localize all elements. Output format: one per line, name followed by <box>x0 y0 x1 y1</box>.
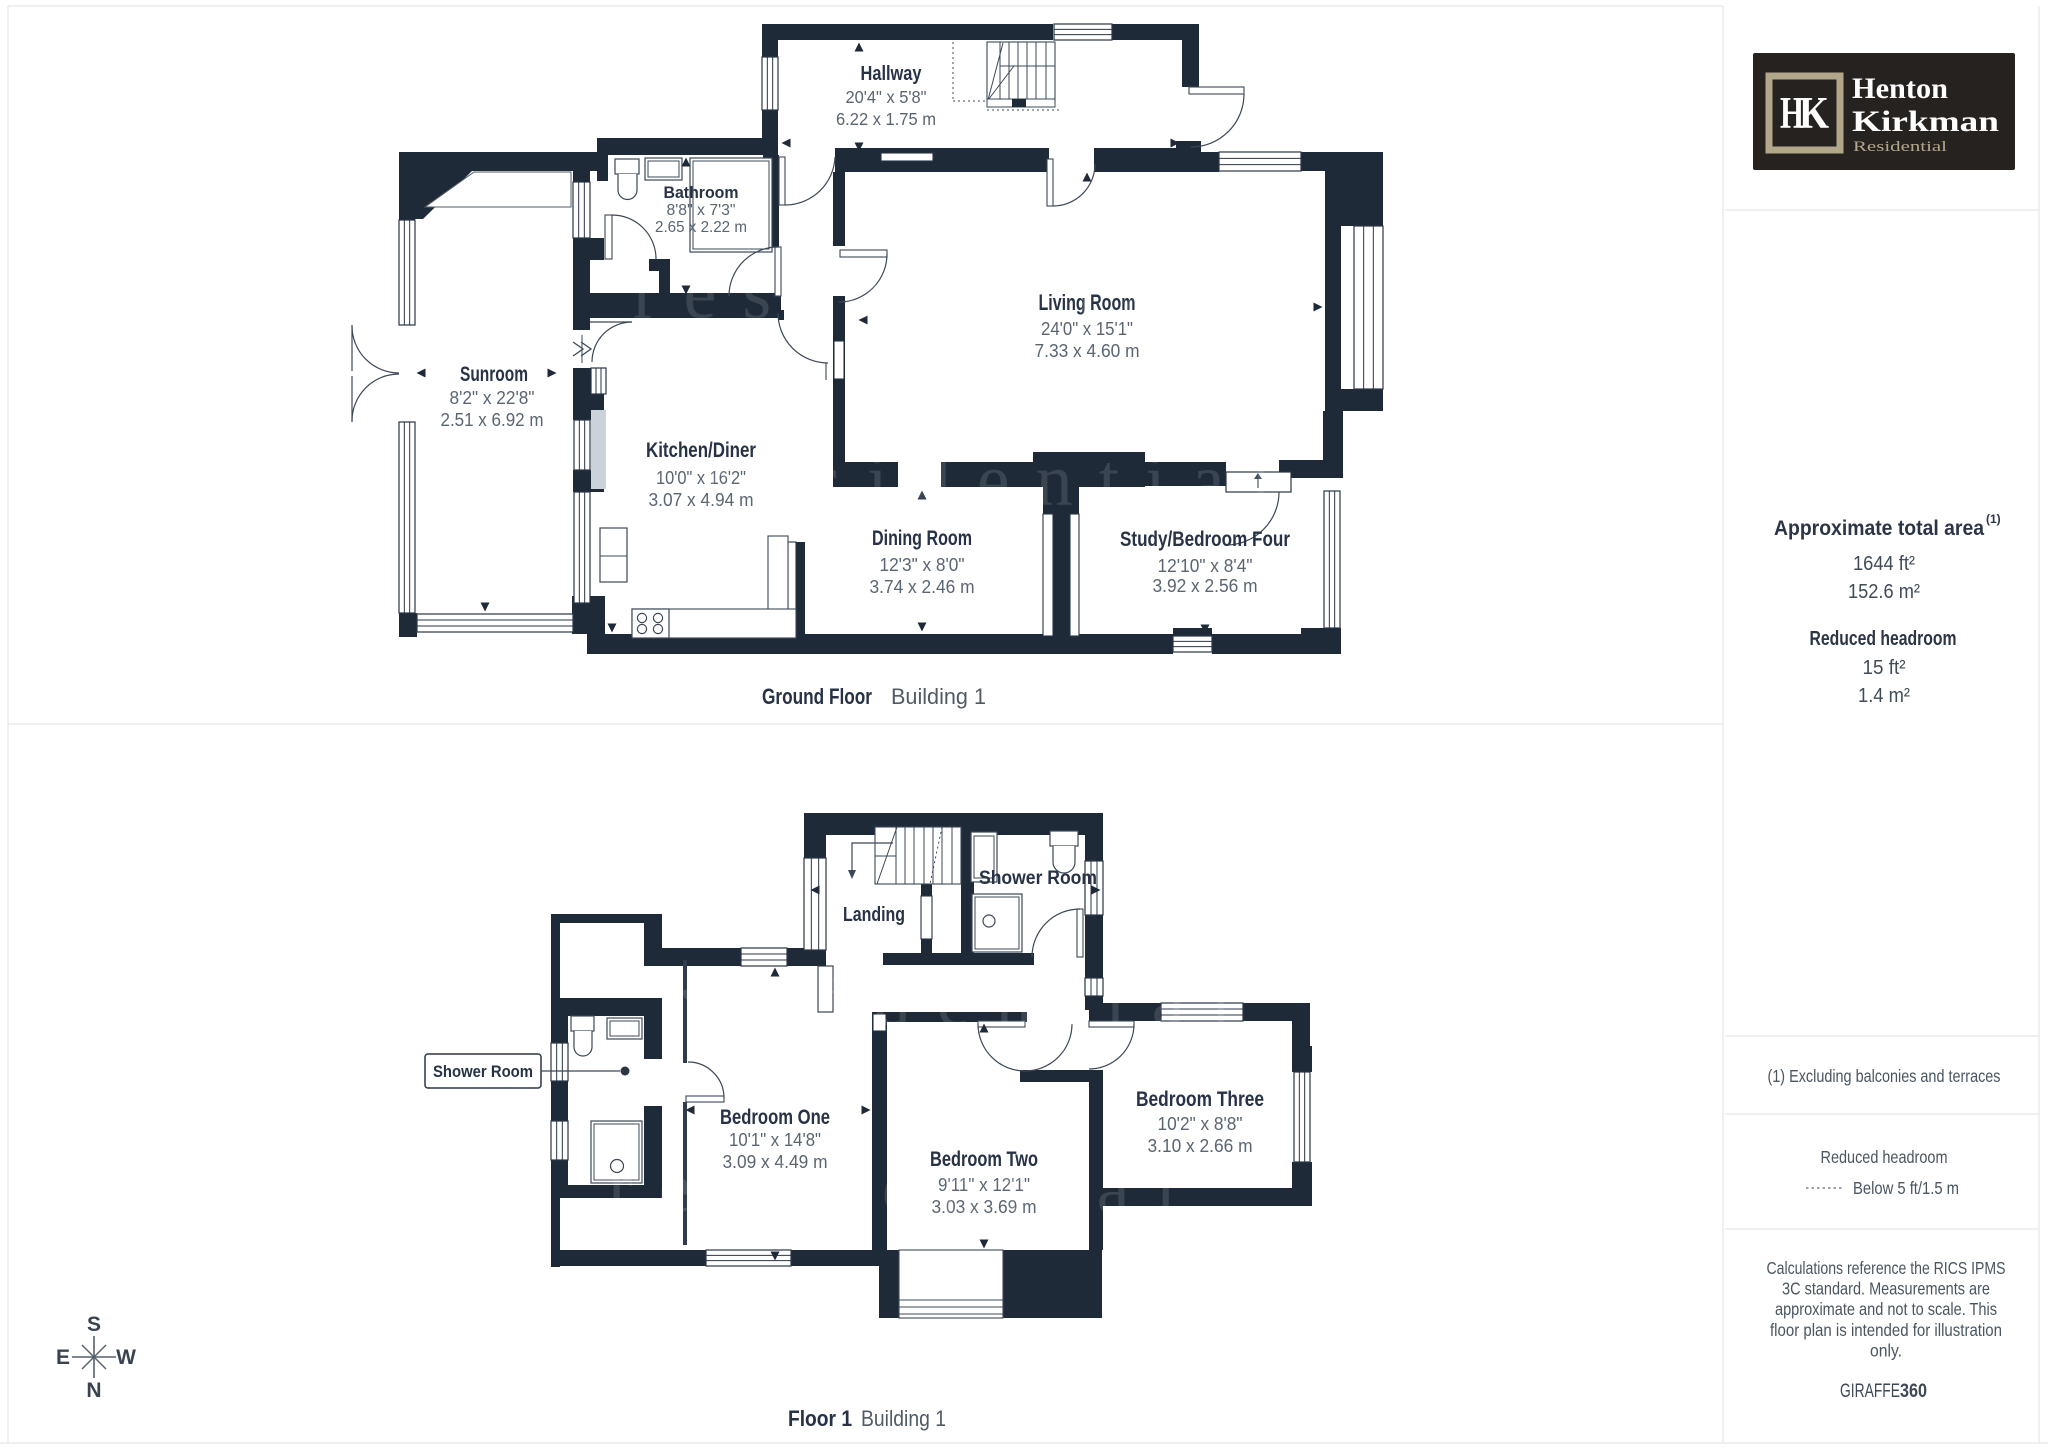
svg-text:10'2" x 8'8": 10'2" x 8'8" <box>1158 1113 1243 1134</box>
svg-text:Bathroom: Bathroom <box>664 183 739 202</box>
svg-text:1644 ft²: 1644 ft² <box>1853 553 1915 575</box>
svg-text:Building 1: Building 1 <box>891 684 986 709</box>
svg-text:only.: only. <box>1870 1340 1902 1360</box>
svg-text:residential: residential <box>633 253 1227 335</box>
svg-text:15 ft²: 15 ft² <box>1863 657 1906 679</box>
svg-text:Landing: Landing <box>843 904 905 926</box>
svg-text:12'10" x 8'4": 12'10" x 8'4" <box>1158 555 1253 576</box>
svg-text:Approximate total area: Approximate total area <box>1774 516 1985 540</box>
svg-text:Bedroom Three: Bedroom Three <box>1136 1088 1264 1111</box>
svg-text:S: S <box>87 1313 101 1336</box>
svg-text:Reduced headroom: Reduced headroom <box>1821 1147 1948 1167</box>
svg-text:Ground Floor: Ground Floor <box>762 684 872 709</box>
svg-text:Floor 1: Floor 1 <box>788 1406 852 1431</box>
svg-text:residential: residential <box>608 1147 1202 1229</box>
svg-text:Dining Room: Dining Room <box>872 527 972 550</box>
svg-text:Kirkman: Kirkman <box>1852 105 1999 138</box>
svg-text:(1): (1) <box>1986 512 2001 526</box>
svg-text:GIRAFFE: GIRAFFE <box>1840 1381 1900 1402</box>
svg-text:2.51 x 6.92 m: 2.51 x 6.92 m <box>441 410 544 430</box>
svg-text:Calculations reference the RIC: Calculations reference the RICS IPMS <box>1767 1258 2006 1278</box>
svg-text:8'8" x 7'3": 8'8" x 7'3" <box>667 202 736 219</box>
svg-text:residential: residential <box>703 440 1297 522</box>
svg-text:Bedroom One: Bedroom One <box>720 1106 830 1129</box>
svg-text:2.65 x 2.22 m: 2.65 x 2.22 m <box>655 219 747 236</box>
svg-text:N: N <box>86 1379 101 1402</box>
svg-text:approximate and not to scale.: approximate and not to scale. This <box>1775 1299 1997 1319</box>
svg-text:12'3" x 8'0": 12'3" x 8'0" <box>880 554 965 575</box>
svg-text:6.22 x 1.75 m: 6.22 x 1.75 m <box>836 109 936 129</box>
svg-text:Building 1: Building 1 <box>861 1406 946 1431</box>
svg-text:E: E <box>56 1346 70 1369</box>
svg-text:Henton: Henton <box>1852 72 1948 105</box>
svg-text:Residential: Residential <box>1853 139 1947 155</box>
svg-text:K: K <box>1799 88 1829 138</box>
svg-text:20'4" x 5'8": 20'4" x 5'8" <box>846 87 927 107</box>
svg-text:(1) Excluding balconies and te: (1) Excluding balconies and terraces <box>1768 1066 2001 1086</box>
svg-text:1.4 m²: 1.4 m² <box>1858 685 1910 707</box>
svg-text:Sunroom: Sunroom <box>460 363 528 386</box>
svg-text:8'2" x 22'8": 8'2" x 22'8" <box>450 388 535 408</box>
svg-text:Reduced headroom: Reduced headroom <box>1810 628 1957 650</box>
svg-text:W: W <box>116 1346 136 1369</box>
svg-text:152.6 m²: 152.6 m² <box>1848 581 1920 603</box>
svg-text:3.92 x 2.56 m: 3.92 x 2.56 m <box>1153 575 1258 596</box>
svg-text:Shower Room: Shower Room <box>979 868 1097 889</box>
svg-text:3C standard. Measurements are: 3C standard. Measurements are <box>1782 1279 1990 1299</box>
svg-text:floor plan is intended for ill: floor plan is intended for illustration <box>1770 1320 2002 1340</box>
svg-text:7.33 x 4.60 m: 7.33 x 4.60 m <box>1035 340 1140 361</box>
svg-text:3.74 x 2.46 m: 3.74 x 2.46 m <box>870 576 975 597</box>
svg-text:Study/Bedroom Four: Study/Bedroom Four <box>1120 528 1290 551</box>
svg-text:Below 5 ft/1.5 m: Below 5 ft/1.5 m <box>1853 1178 1959 1198</box>
svg-text:Hallway: Hallway <box>861 63 923 85</box>
svg-text:Shower Room: Shower Room <box>433 1063 533 1081</box>
svg-text:residential: residential <box>663 960 1257 1042</box>
svg-text:360: 360 <box>1900 1381 1927 1402</box>
